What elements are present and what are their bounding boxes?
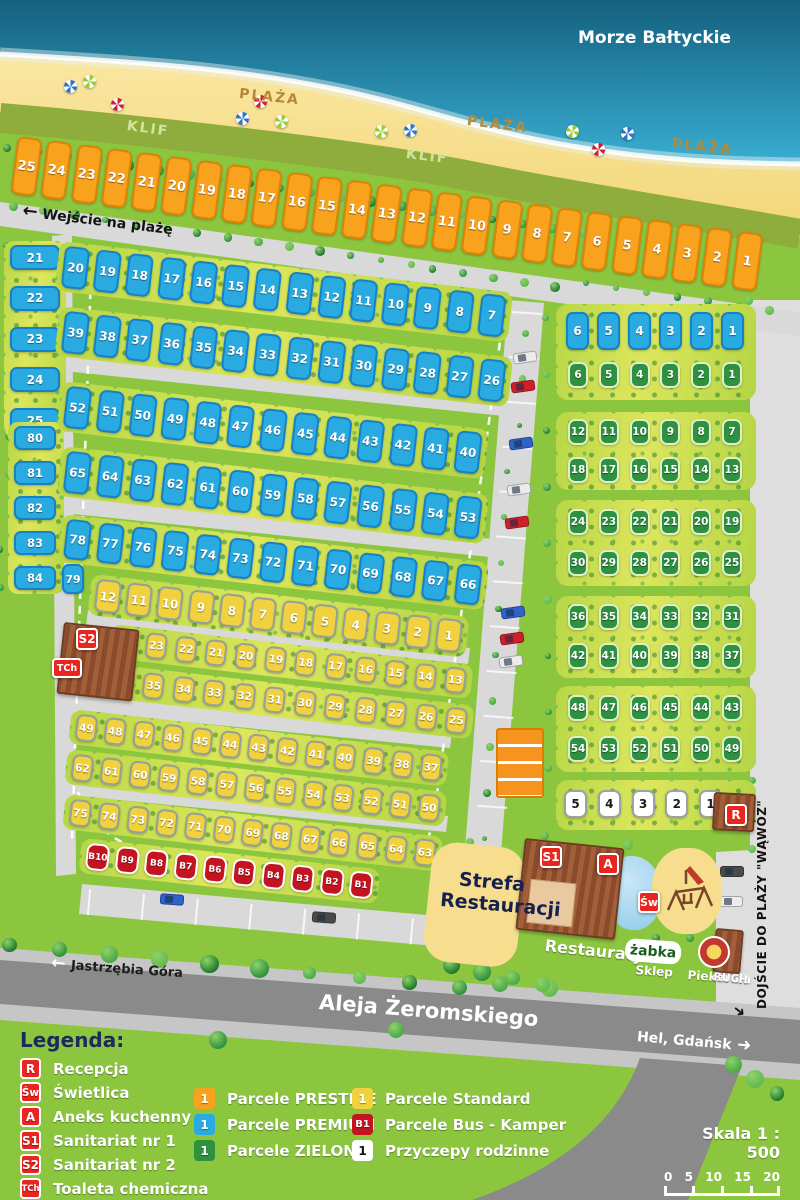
plot-premium-7: 7 [477, 293, 507, 338]
plot-standard-23: 23 [144, 632, 168, 660]
plot-standard-72: 72 [155, 808, 179, 837]
plot-zielone-11: 11 [599, 419, 619, 445]
plot-premium-63: 63 [128, 458, 158, 503]
plot-premium-80: 80 [14, 426, 56, 450]
plot-premium-70: 70 [323, 548, 352, 591]
shop-label: Sklep [635, 963, 673, 980]
plot-zielone-41: 41 [599, 643, 619, 669]
plot-zielone-42: 42 [568, 643, 588, 669]
legend-type-premium-symbol: 1 [194, 1114, 215, 1135]
plot-prestige-14: 14 [341, 179, 373, 240]
plot-premium-23: 23 [10, 327, 60, 352]
legend-type-zielone-label: Parcele ZIELONE [227, 1142, 366, 1160]
legend-type-standard-symbol: 1 [352, 1088, 373, 1109]
plot-premium-26: 26 [477, 358, 507, 403]
scale-bar: Skala 1 : 500 05101520 [664, 1124, 780, 1196]
plot-premium-19: 19 [93, 249, 123, 294]
plot-prestige-18: 18 [221, 164, 253, 225]
plot-zielone-43: 43 [722, 695, 742, 721]
plot-standard-49: 49 [74, 714, 98, 743]
plot-premium-39: 39 [61, 311, 91, 356]
plot-standard-19: 19 [264, 646, 288, 674]
plot-premium-22: 22 [10, 286, 60, 311]
plot-premium-40: 40 [453, 430, 483, 475]
plot-zielone-4: 4 [630, 362, 650, 388]
plot-premium-20: 20 [61, 246, 91, 291]
plot-zielone-45: 45 [660, 695, 680, 721]
plot-premium-65: 65 [63, 451, 93, 496]
plot-zielone-34: 34 [630, 604, 650, 630]
legend-facility-s1-symbol: S1 [20, 1130, 41, 1151]
plot-premium-55: 55 [388, 488, 418, 533]
zabka-logo: żabka [624, 938, 681, 965]
plot-standard-60: 60 [128, 760, 152, 789]
plot-standard-27: 27 [384, 700, 408, 728]
plot-standard-37: 37 [419, 753, 443, 782]
sanitary-2-marker: S2 [76, 628, 98, 650]
plot-standard-42: 42 [275, 737, 299, 766]
plot-premium-1: 1 [721, 312, 744, 350]
plot-standard-31: 31 [263, 686, 287, 714]
plot-premium-79: 79 [62, 564, 84, 594]
legend-type-bus: B1Parcele Bus - Kamper [352, 1114, 566, 1135]
plot-premium-9: 9 [413, 286, 443, 331]
plot-standard-53: 53 [330, 783, 354, 812]
legend-facility-tch-label: Toaleta chemiczna [53, 1180, 208, 1198]
plot-zielone-40: 40 [630, 643, 650, 669]
plot-standard-4: 4 [342, 607, 371, 643]
plot-premium-82: 82 [14, 496, 56, 520]
plot-premium-72: 72 [258, 541, 287, 584]
plot-premium-58: 58 [291, 477, 321, 522]
legend-facility-tch: TChToaleta chemiczna [20, 1178, 208, 1199]
legend: Legenda: RRecepcjaŚwŚwietlicaAAneks kuch… [20, 1028, 208, 1200]
plot-premium-41: 41 [421, 426, 451, 471]
plot-zielone-8: 8 [691, 419, 711, 445]
plot-premium-45: 45 [291, 412, 321, 457]
plot-bus-B9: B9 [114, 846, 140, 875]
plot-premium-34: 34 [221, 329, 251, 374]
plot-zielone-39: 39 [660, 643, 680, 669]
plot-zielone-35: 35 [599, 604, 619, 630]
plot-standard-12: 12 [94, 579, 123, 615]
plot-standard-20: 20 [234, 642, 258, 670]
plot-prestige-19: 19 [191, 160, 223, 221]
plot-zielone-49: 49 [722, 736, 742, 762]
plot-family-2: 2 [665, 790, 688, 818]
plot-prestige-7: 7 [551, 207, 583, 268]
plot-premium-52: 52 [63, 386, 93, 431]
plot-family-4: 4 [598, 790, 621, 818]
plot-zielone-37: 37 [722, 643, 742, 669]
plot-prestige-17: 17 [251, 168, 283, 229]
plot-premium-28: 28 [413, 351, 443, 396]
plot-premium-57: 57 [323, 480, 353, 525]
plot-standard-75: 75 [68, 799, 92, 828]
plot-zielone-51: 51 [660, 736, 680, 762]
scale-tick-labels: 05101520 [664, 1170, 780, 1184]
plot-standard-59: 59 [157, 764, 181, 793]
plot-premium-77: 77 [96, 522, 125, 565]
plot-premium-38: 38 [93, 314, 123, 359]
plot-premium-51: 51 [95, 389, 125, 434]
right-block-3: 242322212019 302928272625 [556, 500, 756, 586]
plot-premium-32: 32 [285, 336, 315, 381]
plot-premium-64: 64 [95, 454, 125, 499]
plot-standard-39: 39 [362, 746, 386, 775]
legend-type-premium: 1Parcele PREMIUM [194, 1114, 377, 1135]
plot-premium-14: 14 [253, 268, 283, 313]
beach-access-label: DOJŚCIE DO PLAŻY "WĄWÓZ" [755, 829, 769, 1009]
plot-premium-76: 76 [128, 526, 157, 569]
plot-family-5: 5 [564, 790, 587, 818]
plot-standard-67: 67 [298, 825, 322, 854]
plot-zielone-20: 20 [691, 509, 711, 535]
legend-title: Legenda: [20, 1028, 208, 1052]
plot-zielone-3: 3 [660, 362, 680, 388]
legend-type-family: 1Przyczepy rodzinne [352, 1140, 566, 1161]
plot-standard-35: 35 [142, 672, 166, 700]
plot-zielone-38: 38 [691, 643, 711, 669]
legend-facility-r-symbol: R [20, 1058, 41, 1079]
legend-facility-a-symbol: A [20, 1106, 41, 1127]
plot-standard-11: 11 [125, 582, 154, 618]
plot-zielone-23: 23 [599, 509, 619, 535]
plot-standard-62: 62 [70, 754, 94, 783]
plot-premium-2: 2 [690, 312, 713, 350]
plot-premium-62: 62 [160, 462, 190, 507]
plot-family-3: 3 [632, 790, 655, 818]
plot-zielone-16: 16 [630, 457, 650, 483]
plot-standard-22: 22 [174, 635, 198, 663]
plot-standard-29: 29 [323, 693, 347, 721]
plot-zielone-29: 29 [599, 550, 619, 576]
legend-type-standard-label: Parcele Standard [385, 1090, 530, 1108]
legend-type-family-symbol: 1 [352, 1140, 373, 1161]
legend-facility-r-label: Recepcja [53, 1060, 129, 1078]
plot-standard-56: 56 [244, 773, 268, 802]
common-room-marker: Św [638, 891, 660, 913]
plot-standard-33: 33 [202, 679, 226, 707]
plot-standard-45: 45 [189, 727, 213, 756]
plot-prestige-22: 22 [100, 148, 132, 209]
plot-zielone-25: 25 [722, 550, 742, 576]
plot-standard-2: 2 [403, 614, 432, 650]
plot-standard-73: 73 [126, 805, 150, 834]
plot-prestige-15: 15 [311, 176, 343, 237]
legend-type-prestige: 1Parcele PRESTIGE [194, 1088, 377, 1109]
plot-zielone-15: 15 [660, 457, 680, 483]
plot-premium-8: 8 [445, 289, 475, 334]
legend-facility-św-label: Świetlica [53, 1084, 129, 1102]
plot-zielone-9: 9 [660, 419, 680, 445]
plot-premium-31: 31 [317, 340, 347, 385]
plot-bus-B8: B8 [144, 849, 170, 878]
plot-premium-12: 12 [317, 275, 347, 320]
plot-prestige-23: 23 [70, 144, 102, 205]
premium-left-column-b: 8081828384 [8, 422, 64, 594]
plot-bus-B2: B2 [319, 867, 345, 896]
plot-premium-35: 35 [189, 325, 219, 370]
plot-standard-10: 10 [156, 586, 185, 622]
legend-type-zielone: 1Parcele ZIELONE [194, 1140, 377, 1161]
plot-premium-6: 6 [566, 312, 589, 350]
plot-standard-64: 64 [384, 835, 408, 864]
plot-premium-3: 3 [659, 312, 682, 350]
plot-prestige-8: 8 [521, 203, 553, 264]
kitchen-annex-marker: A [597, 853, 619, 875]
plot-zielone-17: 17 [599, 457, 619, 483]
plot-zielone-53: 53 [599, 736, 619, 762]
plot-bus-B10: B10 [85, 843, 111, 872]
plot-standard-30: 30 [293, 689, 317, 717]
plot-premium-73: 73 [226, 537, 255, 580]
plot-prestige-2: 2 [701, 227, 733, 288]
plot-standard-43: 43 [247, 733, 271, 762]
plot-zielone-2: 2 [691, 362, 711, 388]
legend-facility-s2-symbol: S2 [20, 1154, 41, 1175]
restaurant-zone-label: Strefa Restauracji [439, 868, 542, 920]
plot-standard-44: 44 [218, 730, 242, 759]
plot-zielone-30: 30 [568, 550, 588, 576]
plot-prestige-21: 21 [131, 152, 163, 213]
plot-bus-B4: B4 [260, 861, 286, 890]
plot-zielone-48: 48 [568, 695, 588, 721]
plot-zielone-7: 7 [722, 419, 742, 445]
plot-zielone-26: 26 [691, 550, 711, 576]
legend-facility-a: AAneks kuchenny [20, 1106, 208, 1127]
sanitary-1-marker: S1 [540, 846, 562, 868]
plot-standard-40: 40 [333, 743, 357, 772]
plot-premium-50: 50 [128, 393, 158, 438]
plot-standard-18: 18 [294, 649, 318, 677]
legend-facility-tch-symbol: TCh [20, 1178, 41, 1199]
plot-zielone-44: 44 [691, 695, 711, 721]
plot-prestige-4: 4 [641, 219, 673, 280]
plot-bus-B5: B5 [231, 858, 257, 887]
plot-standard-32: 32 [233, 682, 257, 710]
plot-premium-48: 48 [193, 400, 223, 445]
plot-premium-13: 13 [285, 271, 315, 316]
plot-prestige-16: 16 [281, 172, 313, 233]
plot-premium-74: 74 [193, 533, 222, 576]
plot-premium-5: 5 [597, 312, 620, 350]
legend-plot-types-b: 1Parcele StandardB1Parcele Bus - Kamper1… [352, 1088, 566, 1166]
plot-prestige-24: 24 [40, 140, 72, 201]
legend-facility-s1-label: Sanitariat nr 1 [53, 1132, 176, 1150]
plot-standard-17: 17 [324, 652, 348, 680]
plot-premium-53: 53 [453, 495, 483, 540]
plot-bus-B6: B6 [202, 855, 228, 884]
plot-zielone-12: 12 [568, 419, 588, 445]
plot-zielone-47: 47 [599, 695, 619, 721]
plot-standard-15: 15 [384, 659, 408, 687]
plot-standard-57: 57 [215, 770, 239, 799]
plot-standard-66: 66 [327, 828, 351, 857]
plot-premium-43: 43 [356, 419, 386, 464]
plot-standard-13: 13 [443, 666, 467, 694]
plot-standard-65: 65 [356, 831, 380, 860]
scale-ruler [664, 1186, 780, 1196]
utility-building [496, 728, 544, 798]
plot-prestige-13: 13 [371, 183, 403, 244]
plot-zielone-10: 10 [630, 419, 650, 445]
legend-facility-s2-label: Sanitariat nr 2 [53, 1156, 176, 1174]
plot-prestige-3: 3 [671, 223, 703, 284]
legend-type-bus-symbol: B1 [352, 1114, 373, 1135]
plot-premium-75: 75 [161, 530, 190, 573]
plot-standard-7: 7 [249, 596, 278, 632]
plot-premium-24: 24 [10, 367, 60, 392]
plot-prestige-6: 6 [581, 211, 613, 272]
playground-icon [660, 858, 720, 918]
plot-zielone-32: 32 [691, 604, 711, 630]
plot-standard-61: 61 [99, 757, 123, 786]
plot-zielone-50: 50 [691, 736, 711, 762]
plot-zielone-33: 33 [660, 604, 680, 630]
plot-zielone-28: 28 [630, 550, 650, 576]
legend-facility-św-symbol: Św [20, 1082, 41, 1103]
plot-standard-21: 21 [204, 639, 228, 667]
plot-premium-36: 36 [157, 322, 187, 367]
right-block-5: 484746454443 545352515049 [556, 686, 756, 772]
plot-standard-70: 70 [212, 815, 236, 844]
plot-bus-B1: B1 [348, 870, 374, 899]
plot-bus-B3: B3 [290, 864, 316, 893]
plot-premium-4: 4 [628, 312, 651, 350]
plot-premium-54: 54 [421, 491, 451, 536]
plot-zielone-19: 19 [722, 509, 742, 535]
right-block-1: 654321 654321 [556, 304, 756, 400]
plot-standard-14: 14 [413, 663, 437, 691]
plot-bus-B7: B7 [173, 852, 199, 881]
plot-zielone-22: 22 [630, 509, 650, 535]
plot-premium-46: 46 [258, 408, 288, 453]
plot-premium-15: 15 [221, 264, 251, 309]
premium-plot-79: 79 [62, 564, 86, 594]
plot-zielone-1: 1 [722, 362, 742, 388]
plot-standard-8: 8 [218, 593, 247, 629]
plot-zielone-5: 5 [599, 362, 619, 388]
plot-premium-71: 71 [291, 545, 320, 588]
plot-standard-48: 48 [103, 717, 127, 746]
plot-standard-54: 54 [302, 780, 326, 809]
plot-standard-58: 58 [186, 767, 210, 796]
plot-prestige-10: 10 [461, 195, 493, 256]
plot-premium-66: 66 [453, 563, 482, 606]
plot-zielone-52: 52 [630, 736, 650, 762]
plot-zielone-14: 14 [691, 457, 711, 483]
arrow-left-icon: ← [51, 953, 67, 974]
plot-premium-78: 78 [63, 519, 92, 562]
chemical-toilet-marker: TCh [52, 658, 82, 678]
plot-premium-59: 59 [258, 473, 288, 518]
legend-plot-types-a: 1Parcele PRESTIGE1Parcele PREMIUM1Parcel… [194, 1088, 377, 1166]
plot-premium-33: 33 [253, 333, 283, 378]
legend-facility-św: ŚwŚwietlica [20, 1082, 208, 1103]
plot-premium-83: 83 [14, 531, 56, 555]
plot-premium-42: 42 [388, 423, 418, 468]
plot-premium-84: 84 [14, 566, 56, 590]
legend-facilities: RRecepcjaŚwŚwietlicaAAneks kuchennyS1San… [20, 1058, 208, 1199]
plot-standard-52: 52 [359, 787, 383, 816]
plot-standard-50: 50 [417, 793, 441, 822]
plot-standard-3: 3 [373, 610, 402, 646]
plot-prestige-9: 9 [491, 199, 523, 260]
plot-zielone-54: 54 [568, 736, 588, 762]
plot-standard-71: 71 [183, 812, 207, 841]
plot-prestige-11: 11 [431, 191, 463, 252]
plot-zielone-31: 31 [722, 604, 742, 630]
plot-premium-61: 61 [193, 465, 223, 510]
plot-premium-56: 56 [356, 484, 386, 529]
plot-standard-5: 5 [311, 603, 340, 639]
legend-type-family-label: Przyczepy rodzinne [385, 1142, 549, 1160]
reception-marker: R [725, 804, 747, 826]
plot-standard-34: 34 [172, 676, 196, 704]
plot-premium-21: 21 [10, 245, 60, 270]
plot-standard-16: 16 [354, 656, 378, 684]
plot-premium-18: 18 [125, 253, 155, 298]
plot-standard-28: 28 [354, 696, 378, 724]
legend-type-standard: 1Parcele Standard [352, 1088, 566, 1109]
plot-premium-69: 69 [356, 552, 385, 595]
plot-zielone-21: 21 [660, 509, 680, 535]
plot-standard-26: 26 [414, 703, 438, 731]
plot-standard-41: 41 [304, 740, 328, 769]
plot-premium-47: 47 [225, 404, 255, 449]
plot-zielone-13: 13 [722, 457, 742, 483]
plot-premium-10: 10 [381, 282, 411, 327]
plot-standard-6: 6 [280, 600, 309, 636]
scale-title: Skala 1 : 500 [664, 1124, 780, 1162]
legend-type-zielone-symbol: 1 [194, 1140, 215, 1161]
arrow-left-icon: ← [21, 200, 39, 223]
plot-zielone-36: 36 [568, 604, 588, 630]
plot-premium-17: 17 [157, 257, 187, 302]
plot-premium-67: 67 [421, 559, 450, 602]
plot-premium-49: 49 [160, 397, 190, 442]
right-block-2: 121110987 181716151413 [556, 412, 756, 490]
plot-zielone-24: 24 [568, 509, 588, 535]
plot-premium-60: 60 [225, 469, 255, 514]
plot-premium-16: 16 [189, 260, 219, 305]
plot-premium-37: 37 [125, 318, 155, 363]
campground-map: Morze Bałtyckie PLAŻA PLAŻA PLAŻA KLIF K… [0, 0, 800, 1200]
plot-premium-29: 29 [381, 347, 411, 392]
legend-type-bus-label: Parcele Bus - Kamper [385, 1116, 566, 1134]
plot-standard-46: 46 [161, 723, 185, 752]
legend-facility-r: RRecepcja [20, 1058, 208, 1079]
right-block-4: 363534333231 424140393837 [556, 596, 756, 678]
plot-standard-55: 55 [273, 777, 297, 806]
plot-premium-27: 27 [445, 354, 475, 399]
plot-premium-68: 68 [388, 556, 417, 599]
plot-standard-74: 74 [97, 802, 121, 831]
plot-premium-81: 81 [14, 461, 56, 485]
legend-facility-s2: S2Sanitariat nr 2 [20, 1154, 208, 1175]
plot-prestige-20: 20 [161, 156, 193, 217]
plot-standard-38: 38 [390, 750, 414, 779]
plot-premium-30: 30 [349, 343, 379, 388]
plot-standard-47: 47 [132, 720, 156, 749]
legend-type-prestige-symbol: 1 [194, 1088, 215, 1109]
plot-standard-69: 69 [241, 818, 265, 847]
plot-zielone-46: 46 [630, 695, 650, 721]
arrow-right-icon: ➜ [736, 1035, 752, 1056]
legend-facility-a-label: Aneks kuchenny [53, 1108, 191, 1126]
plot-standard-9: 9 [187, 589, 216, 625]
